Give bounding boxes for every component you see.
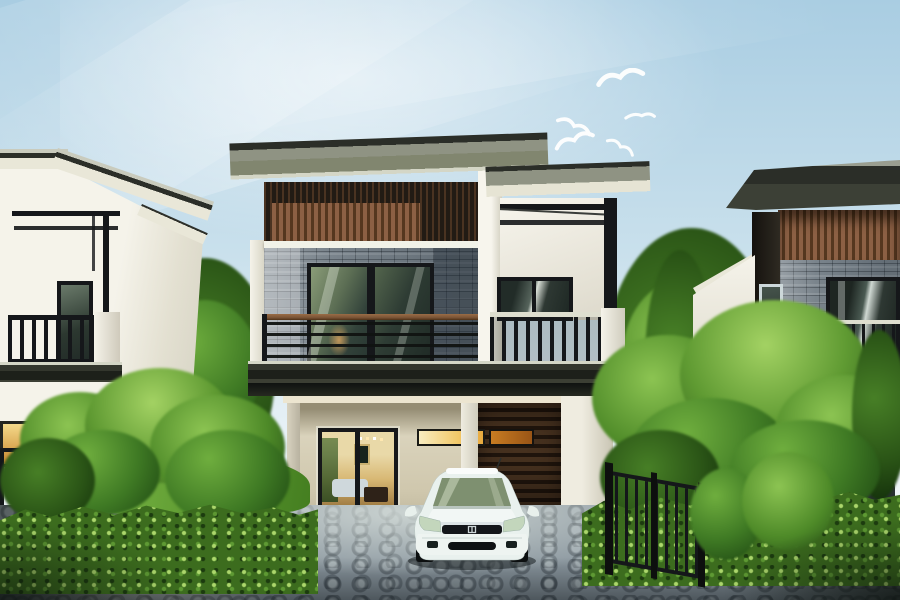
main-house-roof-lower bbox=[485, 161, 650, 201]
rail-balusters bbox=[8, 320, 100, 359]
main-house-floor-slab bbox=[248, 361, 640, 385]
main-house-balcony-right bbox=[490, 312, 604, 364]
rail-end-post bbox=[262, 314, 267, 362]
car-mirror-right bbox=[527, 506, 539, 517]
scene-house-rendering bbox=[0, 0, 900, 600]
fence-post bbox=[651, 472, 657, 579]
right-fence bbox=[605, 462, 705, 600]
vignette-bottom-right bbox=[720, 520, 900, 600]
rail-horizontal-bars bbox=[262, 322, 480, 362]
left-house-parapet bbox=[94, 312, 120, 364]
main-house-wood-trim bbox=[264, 241, 482, 248]
left-house-balcony-slab bbox=[0, 362, 122, 382]
main-house-wood-band bbox=[264, 182, 482, 244]
car-roof-highlight bbox=[446, 468, 498, 474]
car-foglight-right bbox=[506, 541, 517, 548]
wood-slat-panel bbox=[272, 203, 420, 242]
wing-pergola-beam bbox=[500, 220, 612, 225]
interior-sofa bbox=[332, 479, 368, 497]
left-house-balcony-rail bbox=[8, 315, 100, 363]
white-sedan bbox=[402, 456, 542, 574]
right-house-wood-band bbox=[778, 210, 900, 262]
car-cowl bbox=[433, 506, 511, 509]
door-mullion bbox=[355, 432, 360, 508]
main-house-balcony-left bbox=[262, 314, 480, 364]
car-intake bbox=[448, 542, 496, 550]
fence-post bbox=[605, 462, 613, 575]
car-chrome-bar bbox=[440, 522, 504, 525]
sliding-glass-door bbox=[318, 428, 398, 512]
clerestory-window-amber bbox=[489, 429, 534, 446]
main-house-under-beam bbox=[248, 383, 640, 396]
car-foglight-left bbox=[427, 541, 438, 548]
car-hood bbox=[427, 509, 517, 522]
vignette-bottom-left bbox=[0, 520, 180, 600]
car-mirror-left bbox=[405, 506, 417, 517]
left-house-pergola-post bbox=[92, 211, 95, 271]
interior-table bbox=[364, 487, 388, 502]
rail-balusters bbox=[490, 317, 604, 362]
car-antenna bbox=[497, 458, 501, 468]
rail-top-wood bbox=[262, 314, 480, 320]
